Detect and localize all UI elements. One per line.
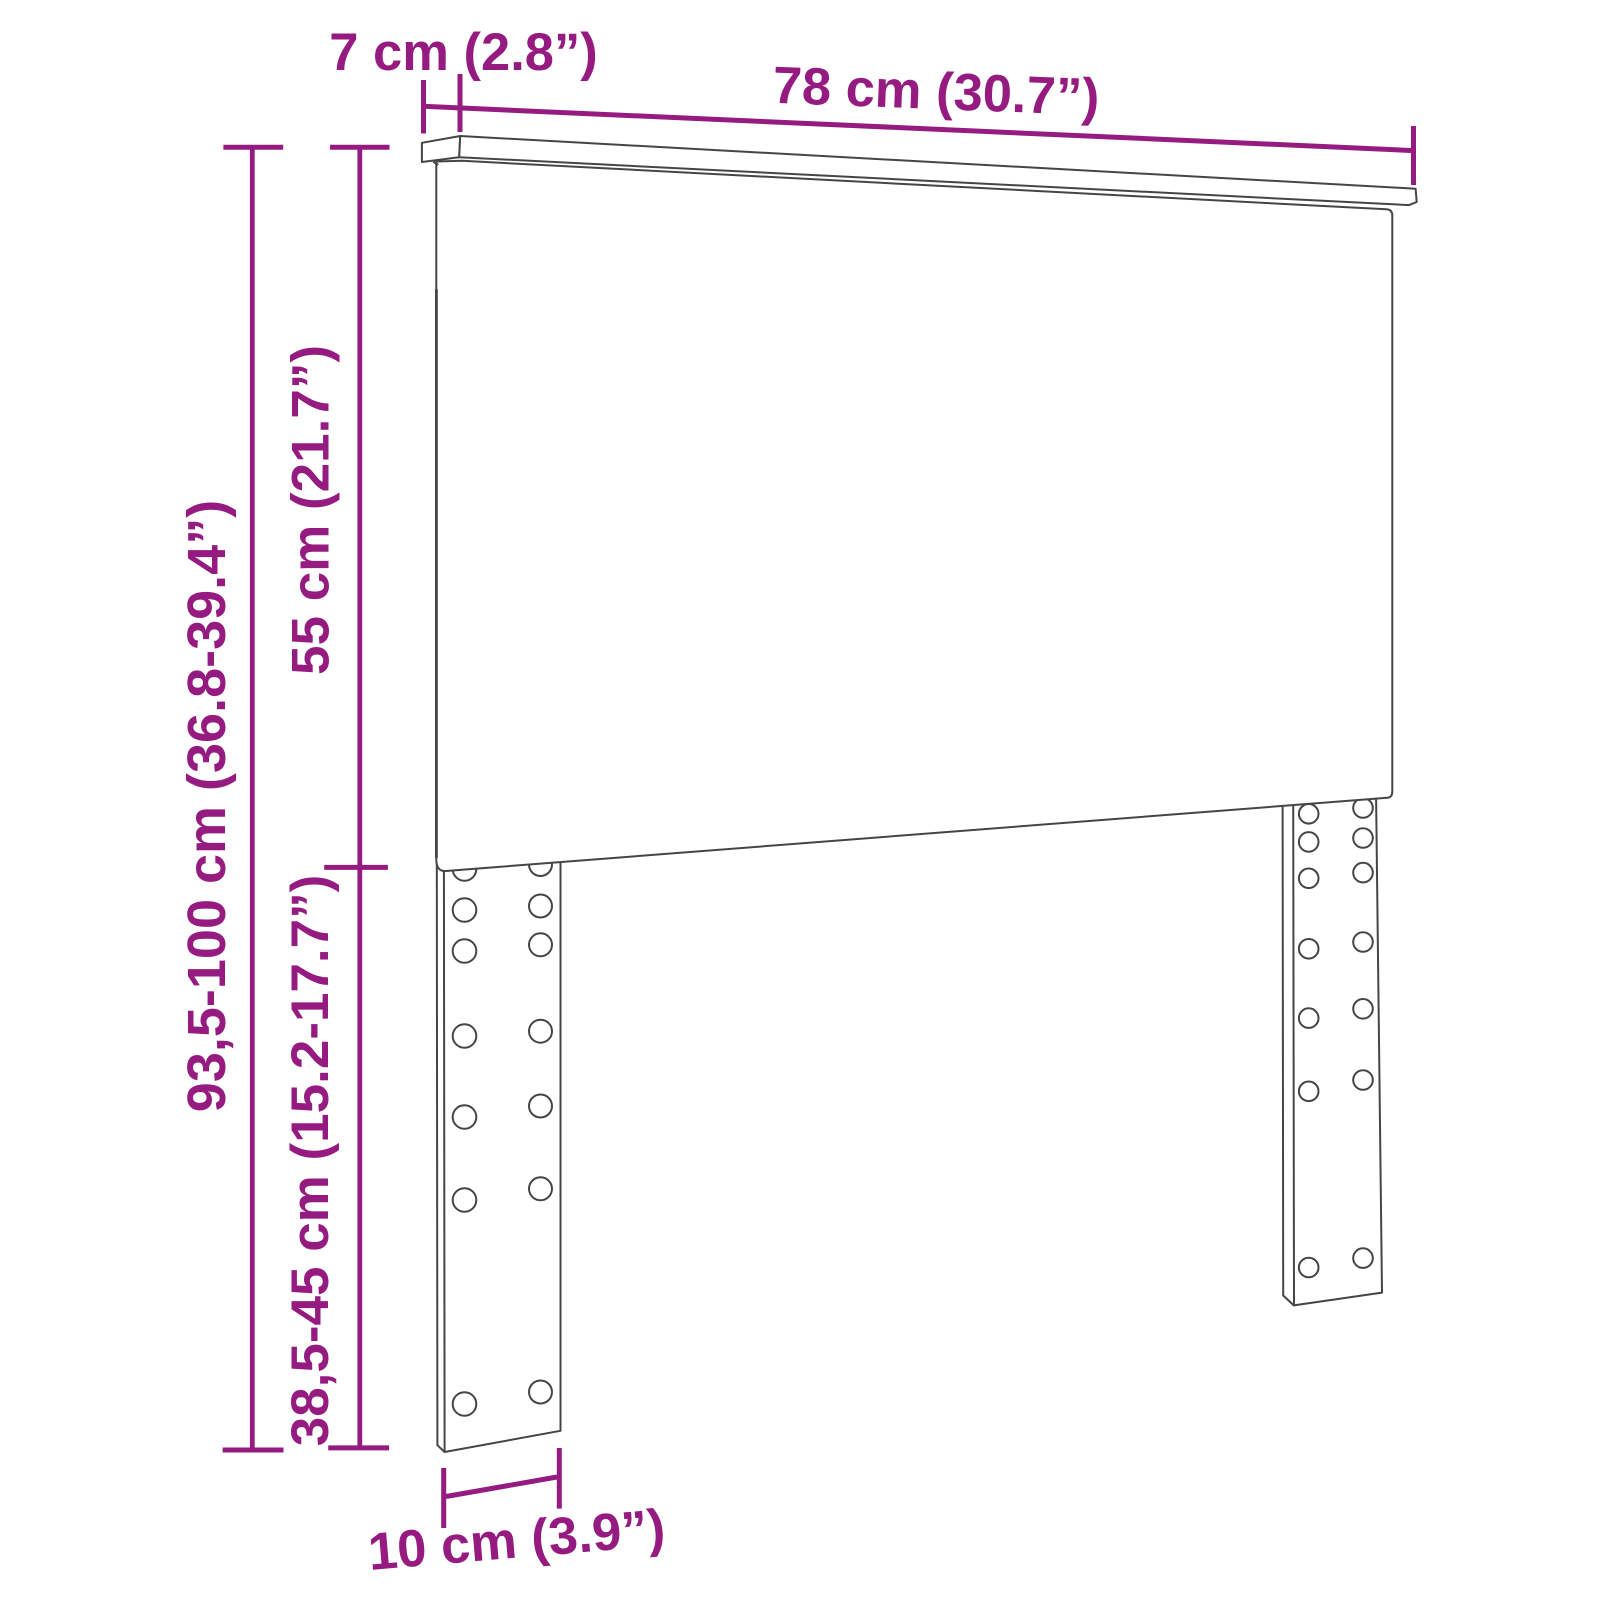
svg-text:55 cm (21.7”): 55 cm (21.7”) [282,345,341,675]
svg-text:7 cm (2.8”): 7 cm (2.8”) [329,23,597,82]
svg-text:38,5-45 cm (15.2-17.7”): 38,5-45 cm (15.2-17.7”) [281,875,340,1447]
svg-text:93,5-100 cm (36.8-39.4”): 93,5-100 cm (36.8-39.4”) [177,500,237,1112]
svg-text:78 cm (30.7”): 78 cm (30.7”) [772,56,1101,128]
svg-text:10 cm (3.9”): 10 cm (3.9”) [366,1498,668,1582]
